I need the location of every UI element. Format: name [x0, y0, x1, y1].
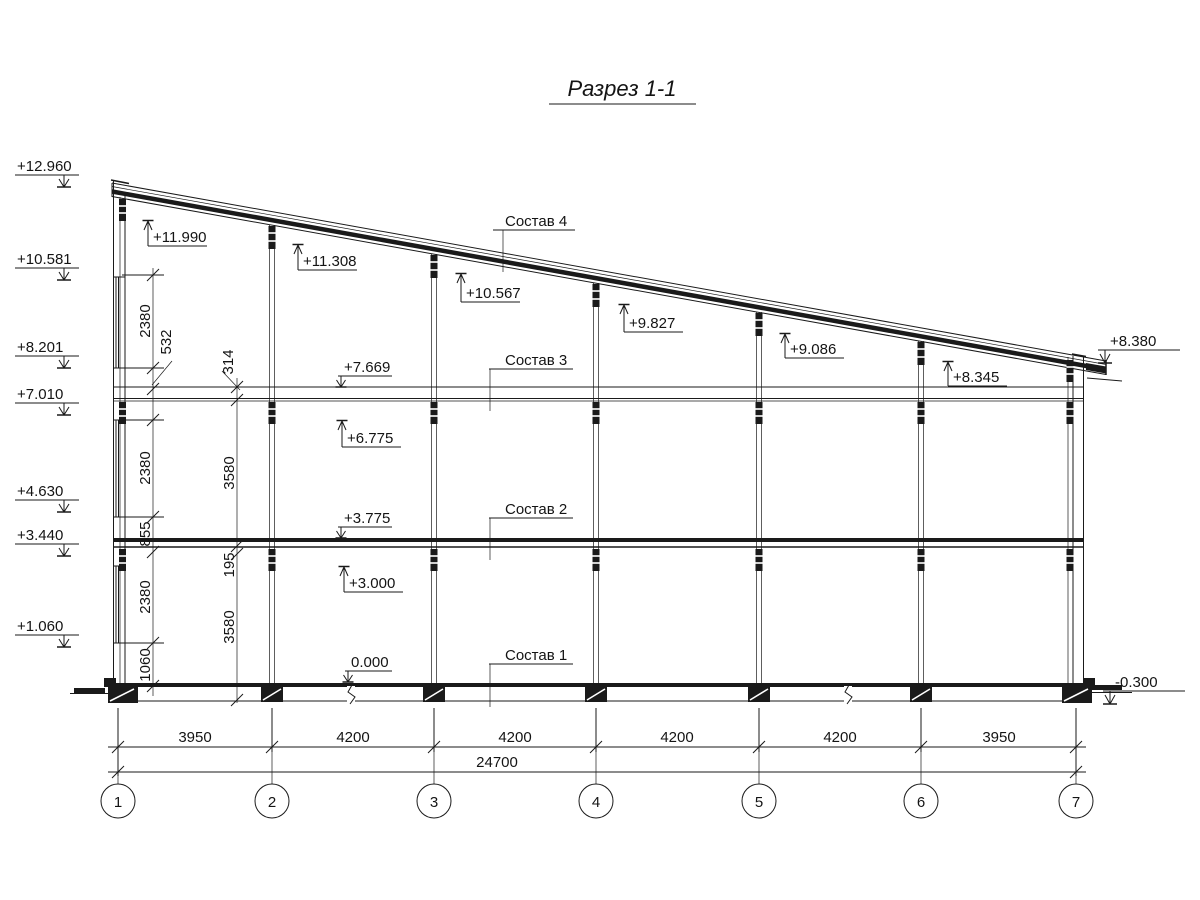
- column-axis-4: [593, 283, 600, 686]
- right-wall: [1067, 354, 1087, 687]
- composition-label-3: Состав 3: [489, 352, 573, 411]
- svg-text:+9.086: +9.086: [790, 341, 836, 358]
- svg-text:Состав 2: Состав 2: [505, 501, 567, 518]
- elevation-mark-11990: +11.990: [143, 221, 208, 247]
- svg-text:0.000: 0.000: [351, 654, 389, 671]
- total-dim: 24700: [476, 754, 518, 771]
- dimension-row-spans: 3950 4200 4200 4200 4200 3950: [108, 729, 1086, 753]
- svg-text:+11.308: +11.308: [303, 253, 357, 270]
- elevation-mark-1060: +1.060: [15, 618, 79, 647]
- svg-text:1: 1: [114, 794, 122, 811]
- span-dim-3-4: 4200: [498, 729, 531, 746]
- elevation-mark-8201: +8.201: [15, 339, 79, 368]
- svg-text:+12.960: +12.960: [17, 158, 72, 175]
- left-wall-windows: [116, 277, 119, 643]
- vertical-dimension-chain-b: 314 3580 195 3580: [220, 349, 243, 706]
- composition-label-1: Состав 1: [489, 647, 573, 707]
- svg-text:Состав 4: Состав 4: [505, 213, 567, 230]
- elevation-mark-3000: +3.000: [339, 567, 404, 593]
- elevation-mark-7010: +7.010: [15, 386, 79, 415]
- elevation-mark-minus0300: -0.300: [1103, 674, 1185, 704]
- svg-text:+4.630: +4.630: [17, 483, 63, 500]
- columns: [269, 225, 925, 686]
- dim-314: 314: [220, 349, 237, 374]
- horizontal-dimensions: 3950 4200 4200 4200 4200 3950 24700: [108, 708, 1086, 778]
- span-dim-2-3: 4200: [336, 729, 369, 746]
- svg-text:+8.345: +8.345: [953, 369, 999, 386]
- column-axis-6: [918, 341, 925, 686]
- grid-bubble-1: 1: [101, 776, 135, 818]
- elevation-mark-7669: +7.669: [336, 359, 393, 387]
- svg-text:3: 3: [430, 794, 438, 811]
- dim-2380-a: 2380: [137, 304, 154, 337]
- grid-bubble-7: 7: [1059, 776, 1093, 818]
- elevation-mark-9827: +9.827: [619, 305, 684, 333]
- svg-text:+3.000: +3.000: [349, 575, 395, 592]
- elevation-mark-6775: +6.775: [337, 421, 402, 448]
- roof: [112, 183, 1122, 381]
- dimension-row-total: 24700: [108, 754, 1086, 778]
- middle-floor: [114, 538, 1084, 547]
- dim-2380-c: 2380: [137, 580, 154, 613]
- column-axis-2: [269, 225, 276, 686]
- span-dim-4-5: 4200: [660, 729, 693, 746]
- elevation-mark-3440: +3.440: [15, 527, 79, 556]
- dim-855: 855: [137, 521, 154, 546]
- svg-text:5: 5: [755, 794, 763, 811]
- svg-text:+8.380: +8.380: [1110, 333, 1156, 350]
- grid-bubble-5: 5: [742, 752, 776, 818]
- svg-text:7: 7: [1072, 794, 1080, 811]
- grid-bubble-3: 3: [417, 752, 451, 818]
- foundation-blocks: [261, 687, 932, 702]
- section-drawing: Разрез 1-1: [0, 0, 1200, 900]
- grid-bubble-2: 2: [255, 752, 289, 818]
- ground-floor: [70, 678, 1132, 704]
- column-axis-3: [431, 254, 438, 686]
- left-wall: [111, 180, 129, 687]
- svg-text:+3.440: +3.440: [17, 527, 63, 544]
- dim-532: 532: [158, 329, 175, 354]
- elevation-mark-8345: +8.345: [943, 362, 1008, 387]
- title-text: Разрез 1-1: [567, 76, 676, 101]
- elevation-mark-11308: +11.308: [293, 245, 358, 271]
- left-foundation: [70, 678, 138, 703]
- vertical-dimension-chain-a: 2380 532 2380 855 2380 1060: [122, 268, 175, 696]
- svg-text:+9.827: +9.827: [629, 315, 675, 332]
- elevation-mark-9086: +9.086: [780, 334, 845, 359]
- dim-195: 195: [221, 552, 238, 577]
- svg-text:+1.060: +1.060: [17, 618, 63, 635]
- svg-text:+11.990: +11.990: [153, 229, 207, 246]
- svg-text:+7.669: +7.669: [344, 359, 390, 376]
- span-dim-1-2: 3950: [178, 729, 211, 746]
- elevation-marks-left: +12.960 +10.581 +8.201 +7.010 +4.630 +3.…: [15, 158, 79, 647]
- svg-text:-0.300: -0.300: [1115, 674, 1158, 691]
- column-axis-5: [756, 312, 763, 686]
- svg-text:Состав 3: Состав 3: [505, 352, 567, 369]
- elevation-mark-10581: +10.581: [15, 251, 79, 280]
- grid-bubble-6: 6: [904, 752, 938, 818]
- svg-text:+8.201: +8.201: [17, 339, 63, 356]
- svg-text:+10.581: +10.581: [17, 251, 72, 268]
- span-dim-5-6: 4200: [823, 729, 856, 746]
- elevation-marks-interior-down: +7.669 +3.775 0.000: [336, 359, 393, 682]
- svg-text:6: 6: [917, 794, 925, 811]
- drawing-title: Разрез 1-1: [549, 76, 696, 104]
- elevation-mark-12960: +12.960: [15, 158, 79, 187]
- ceiling-slab: [114, 387, 1084, 401]
- elevation-mark-0000: 0.000: [343, 654, 393, 682]
- elevation-mark-8380: +8.380: [1098, 333, 1180, 363]
- dim-3580-b: 3580: [221, 610, 238, 643]
- svg-text:+7.010: +7.010: [17, 386, 63, 403]
- grid-axis-bubbles: 1 2 3 4 5 6 7: [101, 752, 1093, 818]
- composition-label-2: Состав 2: [489, 501, 573, 560]
- elevation-mark-10567: +10.567: [456, 274, 521, 303]
- svg-text:+10.567: +10.567: [466, 285, 521, 302]
- dim-2380-b: 2380: [137, 451, 154, 484]
- svg-text:+3.775: +3.775: [344, 510, 390, 527]
- dim-3580-a: 3580: [221, 456, 238, 489]
- elevation-mark-4630: +4.630: [15, 483, 79, 512]
- dim-1060: 1060: [137, 648, 154, 681]
- elevation-marks-right: +8.380 -0.300: [1098, 333, 1185, 704]
- svg-text:4: 4: [592, 794, 600, 811]
- grid-bubble-4: 4: [579, 752, 613, 818]
- svg-text:Состав 1: Состав 1: [505, 647, 567, 664]
- span-dim-6-7: 3950: [982, 729, 1015, 746]
- svg-text:+6.775: +6.775: [347, 430, 393, 447]
- svg-text:2: 2: [268, 794, 276, 811]
- elevation-mark-3775: +3.775: [336, 510, 393, 538]
